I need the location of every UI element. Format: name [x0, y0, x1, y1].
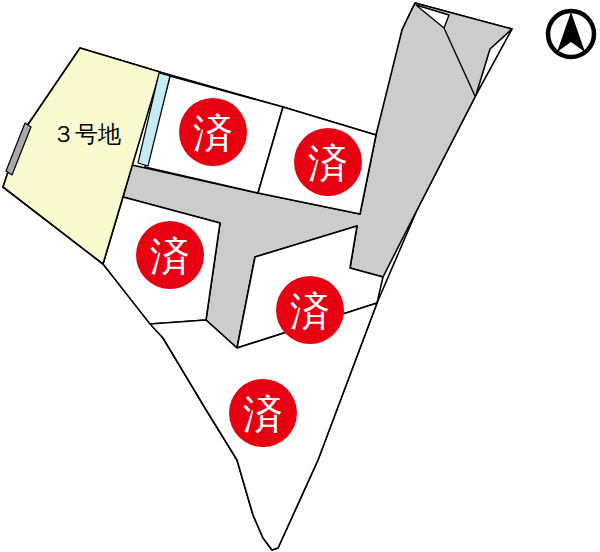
- sold-marker-middle-left: 済: [136, 221, 204, 289]
- sold-marker-top-right: 済: [294, 128, 362, 196]
- sold-marker-top-left: 済: [179, 98, 247, 166]
- sold-marker-text: 済: [243, 391, 283, 437]
- sold-marker-bottom: 済: [229, 379, 297, 447]
- lot-map-canvas: 済 済 済 済 済 ３号地: [0, 0, 600, 552]
- sold-marker-text: 済: [193, 110, 233, 156]
- sold-marker-text: 済: [308, 140, 348, 186]
- north-arrow-icon: [548, 11, 594, 57]
- sold-marker-text: 済: [290, 288, 330, 334]
- lot-map: 済 済 済 済 済 ３号地: [0, 0, 600, 552]
- available-lot-label: ３号地: [52, 121, 121, 147]
- sold-marker-text: 済: [150, 233, 190, 279]
- sold-marker-middle-right: 済: [276, 276, 344, 344]
